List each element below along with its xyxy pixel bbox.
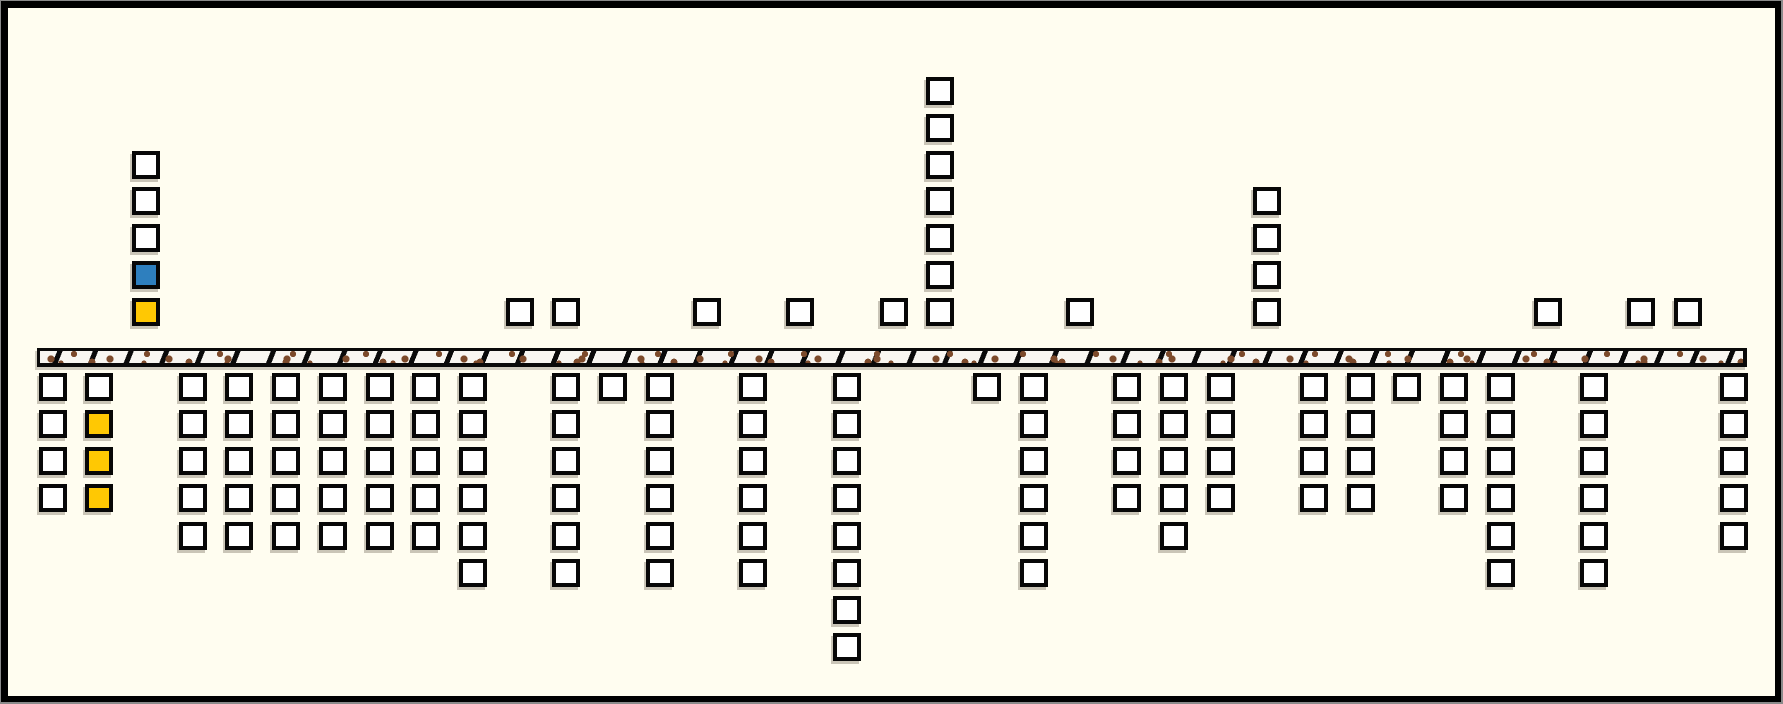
- tile-white[interactable]: [926, 298, 954, 326]
- tile-white[interactable]: [272, 522, 300, 550]
- tile-white[interactable]: [833, 596, 861, 624]
- tile-white[interactable]: [132, 151, 160, 179]
- tile-white[interactable]: [1440, 410, 1468, 438]
- tile-white[interactable]: [833, 484, 861, 512]
- tile-white[interactable]: [85, 373, 113, 401]
- tile-white[interactable]: [739, 484, 767, 512]
- tile-white[interactable]: [880, 298, 908, 326]
- tile-white[interactable]: [319, 522, 347, 550]
- tile-white[interactable]: [833, 559, 861, 587]
- tile-white[interactable]: [366, 484, 394, 512]
- tile-white[interactable]: [1020, 410, 1048, 438]
- tile-white[interactable]: [179, 373, 207, 401]
- tile-white[interactable]: [366, 447, 394, 475]
- tile-gold[interactable]: [85, 484, 113, 512]
- tile-gold[interactable]: [85, 410, 113, 438]
- tile-white[interactable]: [1253, 261, 1281, 289]
- tile-white[interactable]: [1580, 522, 1608, 550]
- tile-white[interactable]: [132, 187, 160, 215]
- tile-white[interactable]: [552, 373, 580, 401]
- tile-white[interactable]: [1113, 410, 1141, 438]
- tile-white[interactable]: [1487, 484, 1515, 512]
- board-frame: [1, 1, 1781, 702]
- tile-white[interactable]: [1720, 410, 1748, 438]
- tile-white[interactable]: [319, 447, 347, 475]
- tile-white[interactable]: [739, 522, 767, 550]
- tile-white[interactable]: [412, 447, 440, 475]
- tile-white[interactable]: [506, 298, 534, 326]
- tile-white[interactable]: [319, 373, 347, 401]
- ground-strip: [37, 348, 1747, 367]
- tile-white[interactable]: [1160, 447, 1188, 475]
- tile-white[interactable]: [1160, 484, 1188, 512]
- tile-white[interactable]: [1253, 224, 1281, 252]
- tile-white[interactable]: [412, 522, 440, 550]
- tile-white[interactable]: [786, 298, 814, 326]
- tile-white[interactable]: [1207, 447, 1235, 475]
- tile-white[interactable]: [1160, 373, 1188, 401]
- tile-white[interactable]: [1440, 373, 1468, 401]
- tile-white[interactable]: [1674, 298, 1702, 326]
- tile-white[interactable]: [1720, 373, 1748, 401]
- tile-white[interactable]: [926, 187, 954, 215]
- tile-white[interactable]: [1020, 373, 1048, 401]
- tile-white[interactable]: [1253, 187, 1281, 215]
- tile-white[interactable]: [1487, 410, 1515, 438]
- tile-white[interactable]: [1207, 484, 1235, 512]
- tile-white[interactable]: [739, 373, 767, 401]
- tile-white[interactable]: [1627, 298, 1655, 326]
- tile-white[interactable]: [179, 522, 207, 550]
- tile-white[interactable]: [552, 447, 580, 475]
- tile-white[interactable]: [646, 410, 674, 438]
- tile-white[interactable]: [1440, 484, 1468, 512]
- tile-white[interactable]: [225, 484, 253, 512]
- tile-white[interactable]: [1440, 447, 1468, 475]
- tile-white[interactable]: [552, 559, 580, 587]
- tile-white[interactable]: [1720, 522, 1748, 550]
- tile-white[interactable]: [833, 410, 861, 438]
- tile-white[interactable]: [1487, 373, 1515, 401]
- tile-white[interactable]: [179, 410, 207, 438]
- tile-white[interactable]: [1160, 522, 1188, 550]
- tile-white[interactable]: [459, 373, 487, 401]
- tile-white[interactable]: [1347, 373, 1375, 401]
- game-window: [0, 0, 1783, 704]
- tile-white[interactable]: [39, 484, 67, 512]
- tile-white[interactable]: [272, 373, 300, 401]
- tile-white[interactable]: [973, 373, 1001, 401]
- tile-white[interactable]: [646, 559, 674, 587]
- tile-white[interactable]: [1207, 410, 1235, 438]
- tile-white[interactable]: [1113, 447, 1141, 475]
- tile-white[interactable]: [412, 484, 440, 512]
- tile-white[interactable]: [1020, 559, 1048, 587]
- tile-white[interactable]: [646, 373, 674, 401]
- tile-white[interactable]: [225, 447, 253, 475]
- tile-white[interactable]: [179, 447, 207, 475]
- tile-white[interactable]: [739, 410, 767, 438]
- tile-white[interactable]: [366, 410, 394, 438]
- tile-white[interactable]: [1347, 484, 1375, 512]
- tile-white[interactable]: [552, 484, 580, 512]
- tile-white[interactable]: [646, 484, 674, 512]
- tile-white[interactable]: [225, 373, 253, 401]
- tile-white[interactable]: [1580, 373, 1608, 401]
- tile-white[interactable]: [1020, 484, 1048, 512]
- tile-white[interactable]: [1066, 298, 1094, 326]
- tile-white[interactable]: [1300, 484, 1328, 512]
- tile-white[interactable]: [366, 373, 394, 401]
- ground-texture: [40, 351, 1743, 363]
- tile-white[interactable]: [833, 522, 861, 550]
- tile-white[interactable]: [693, 298, 721, 326]
- tile-white[interactable]: [926, 151, 954, 179]
- tile-white[interactable]: [1020, 447, 1048, 475]
- tile-white[interactable]: [1113, 484, 1141, 512]
- tile-white[interactable]: [272, 410, 300, 438]
- tile-white[interactable]: [1300, 373, 1328, 401]
- tile-white[interactable]: [552, 522, 580, 550]
- tile-white[interactable]: [132, 224, 160, 252]
- tile-white[interactable]: [1487, 522, 1515, 550]
- tile-white[interactable]: [646, 522, 674, 550]
- tile-white[interactable]: [739, 559, 767, 587]
- tile-white[interactable]: [1300, 410, 1328, 438]
- game-board: [8, 8, 1775, 696]
- tile-white[interactable]: [412, 373, 440, 401]
- tile-white[interactable]: [1347, 410, 1375, 438]
- tile-white[interactable]: [319, 484, 347, 512]
- tile-white[interactable]: [833, 633, 861, 661]
- tile-white[interactable]: [459, 447, 487, 475]
- tile-white[interactable]: [646, 447, 674, 475]
- tile-white[interactable]: [366, 522, 394, 550]
- tile-white[interactable]: [39, 373, 67, 401]
- tile-white[interactable]: [926, 114, 954, 142]
- tile-white[interactable]: [459, 410, 487, 438]
- tile-white[interactable]: [1487, 559, 1515, 587]
- tile-white[interactable]: [459, 522, 487, 550]
- tile-white[interactable]: [926, 261, 954, 289]
- tile-white[interactable]: [926, 224, 954, 252]
- tile-white[interactable]: [272, 447, 300, 475]
- tile-white[interactable]: [1020, 522, 1048, 550]
- tile-gold[interactable]: [132, 298, 160, 326]
- tile-white[interactable]: [319, 410, 347, 438]
- tile-white[interactable]: [39, 447, 67, 475]
- tile-white[interactable]: [412, 410, 440, 438]
- tile-white[interactable]: [833, 447, 861, 475]
- tile-white[interactable]: [179, 484, 207, 512]
- tile-white[interactable]: [1113, 373, 1141, 401]
- tile-white[interactable]: [1487, 447, 1515, 475]
- tile-white[interactable]: [39, 410, 67, 438]
- tile-blue[interactable]: [132, 261, 160, 289]
- tile-white[interactable]: [1580, 447, 1608, 475]
- tile-white[interactable]: [459, 559, 487, 587]
- tile-white[interactable]: [1300, 447, 1328, 475]
- tile-white[interactable]: [272, 484, 300, 512]
- tile-white[interactable]: [1580, 559, 1608, 587]
- tile-gold[interactable]: [85, 447, 113, 475]
- tile-white[interactable]: [1720, 447, 1748, 475]
- tile-white[interactable]: [1720, 484, 1748, 512]
- tile-white[interactable]: [1160, 410, 1188, 438]
- tile-white[interactable]: [926, 77, 954, 105]
- tile-white[interactable]: [599, 373, 627, 401]
- tile-white[interactable]: [225, 522, 253, 550]
- tile-white[interactable]: [739, 447, 767, 475]
- tile-white[interactable]: [1534, 298, 1562, 326]
- tile-white[interactable]: [1393, 373, 1421, 401]
- tile-white[interactable]: [459, 484, 487, 512]
- tile-white[interactable]: [1580, 410, 1608, 438]
- tile-white[interactable]: [1580, 484, 1608, 512]
- tile-white[interactable]: [1207, 373, 1235, 401]
- tile-white[interactable]: [552, 410, 580, 438]
- tile-white[interactable]: [552, 298, 580, 326]
- tile-white[interactable]: [225, 410, 253, 438]
- tile-white[interactable]: [1347, 447, 1375, 475]
- tile-white[interactable]: [833, 373, 861, 401]
- tile-white[interactable]: [1253, 298, 1281, 326]
